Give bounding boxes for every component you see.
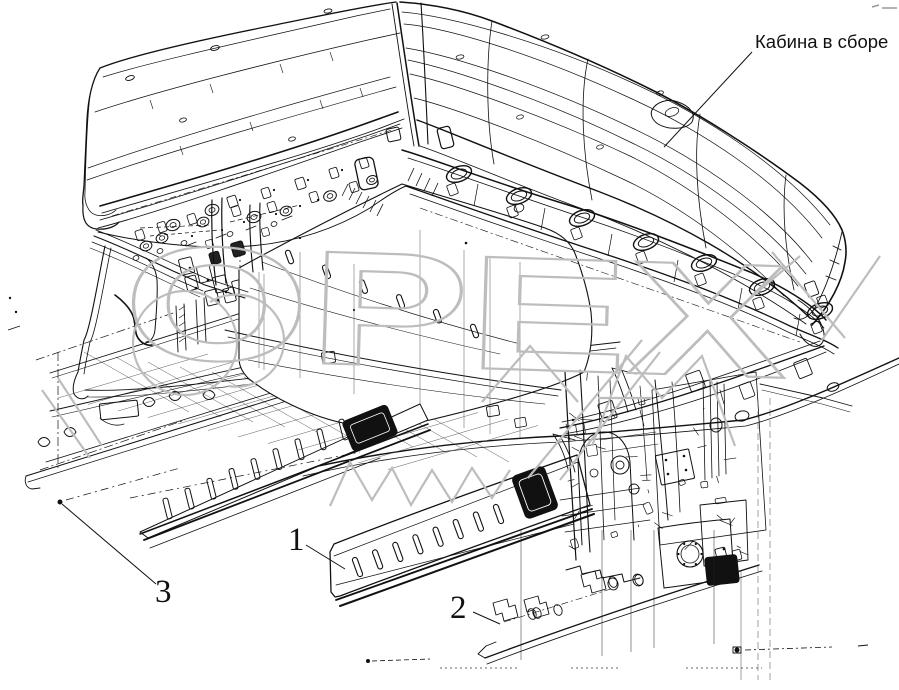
svg-text:OPEX: OPEX (121, 211, 790, 413)
svg-text:Кабина в сборе: Кабина в сборе (755, 31, 888, 52)
svg-text:3: 3 (155, 574, 172, 610)
svg-text:1: 1 (288, 522, 305, 558)
svg-text:2: 2 (450, 590, 467, 626)
